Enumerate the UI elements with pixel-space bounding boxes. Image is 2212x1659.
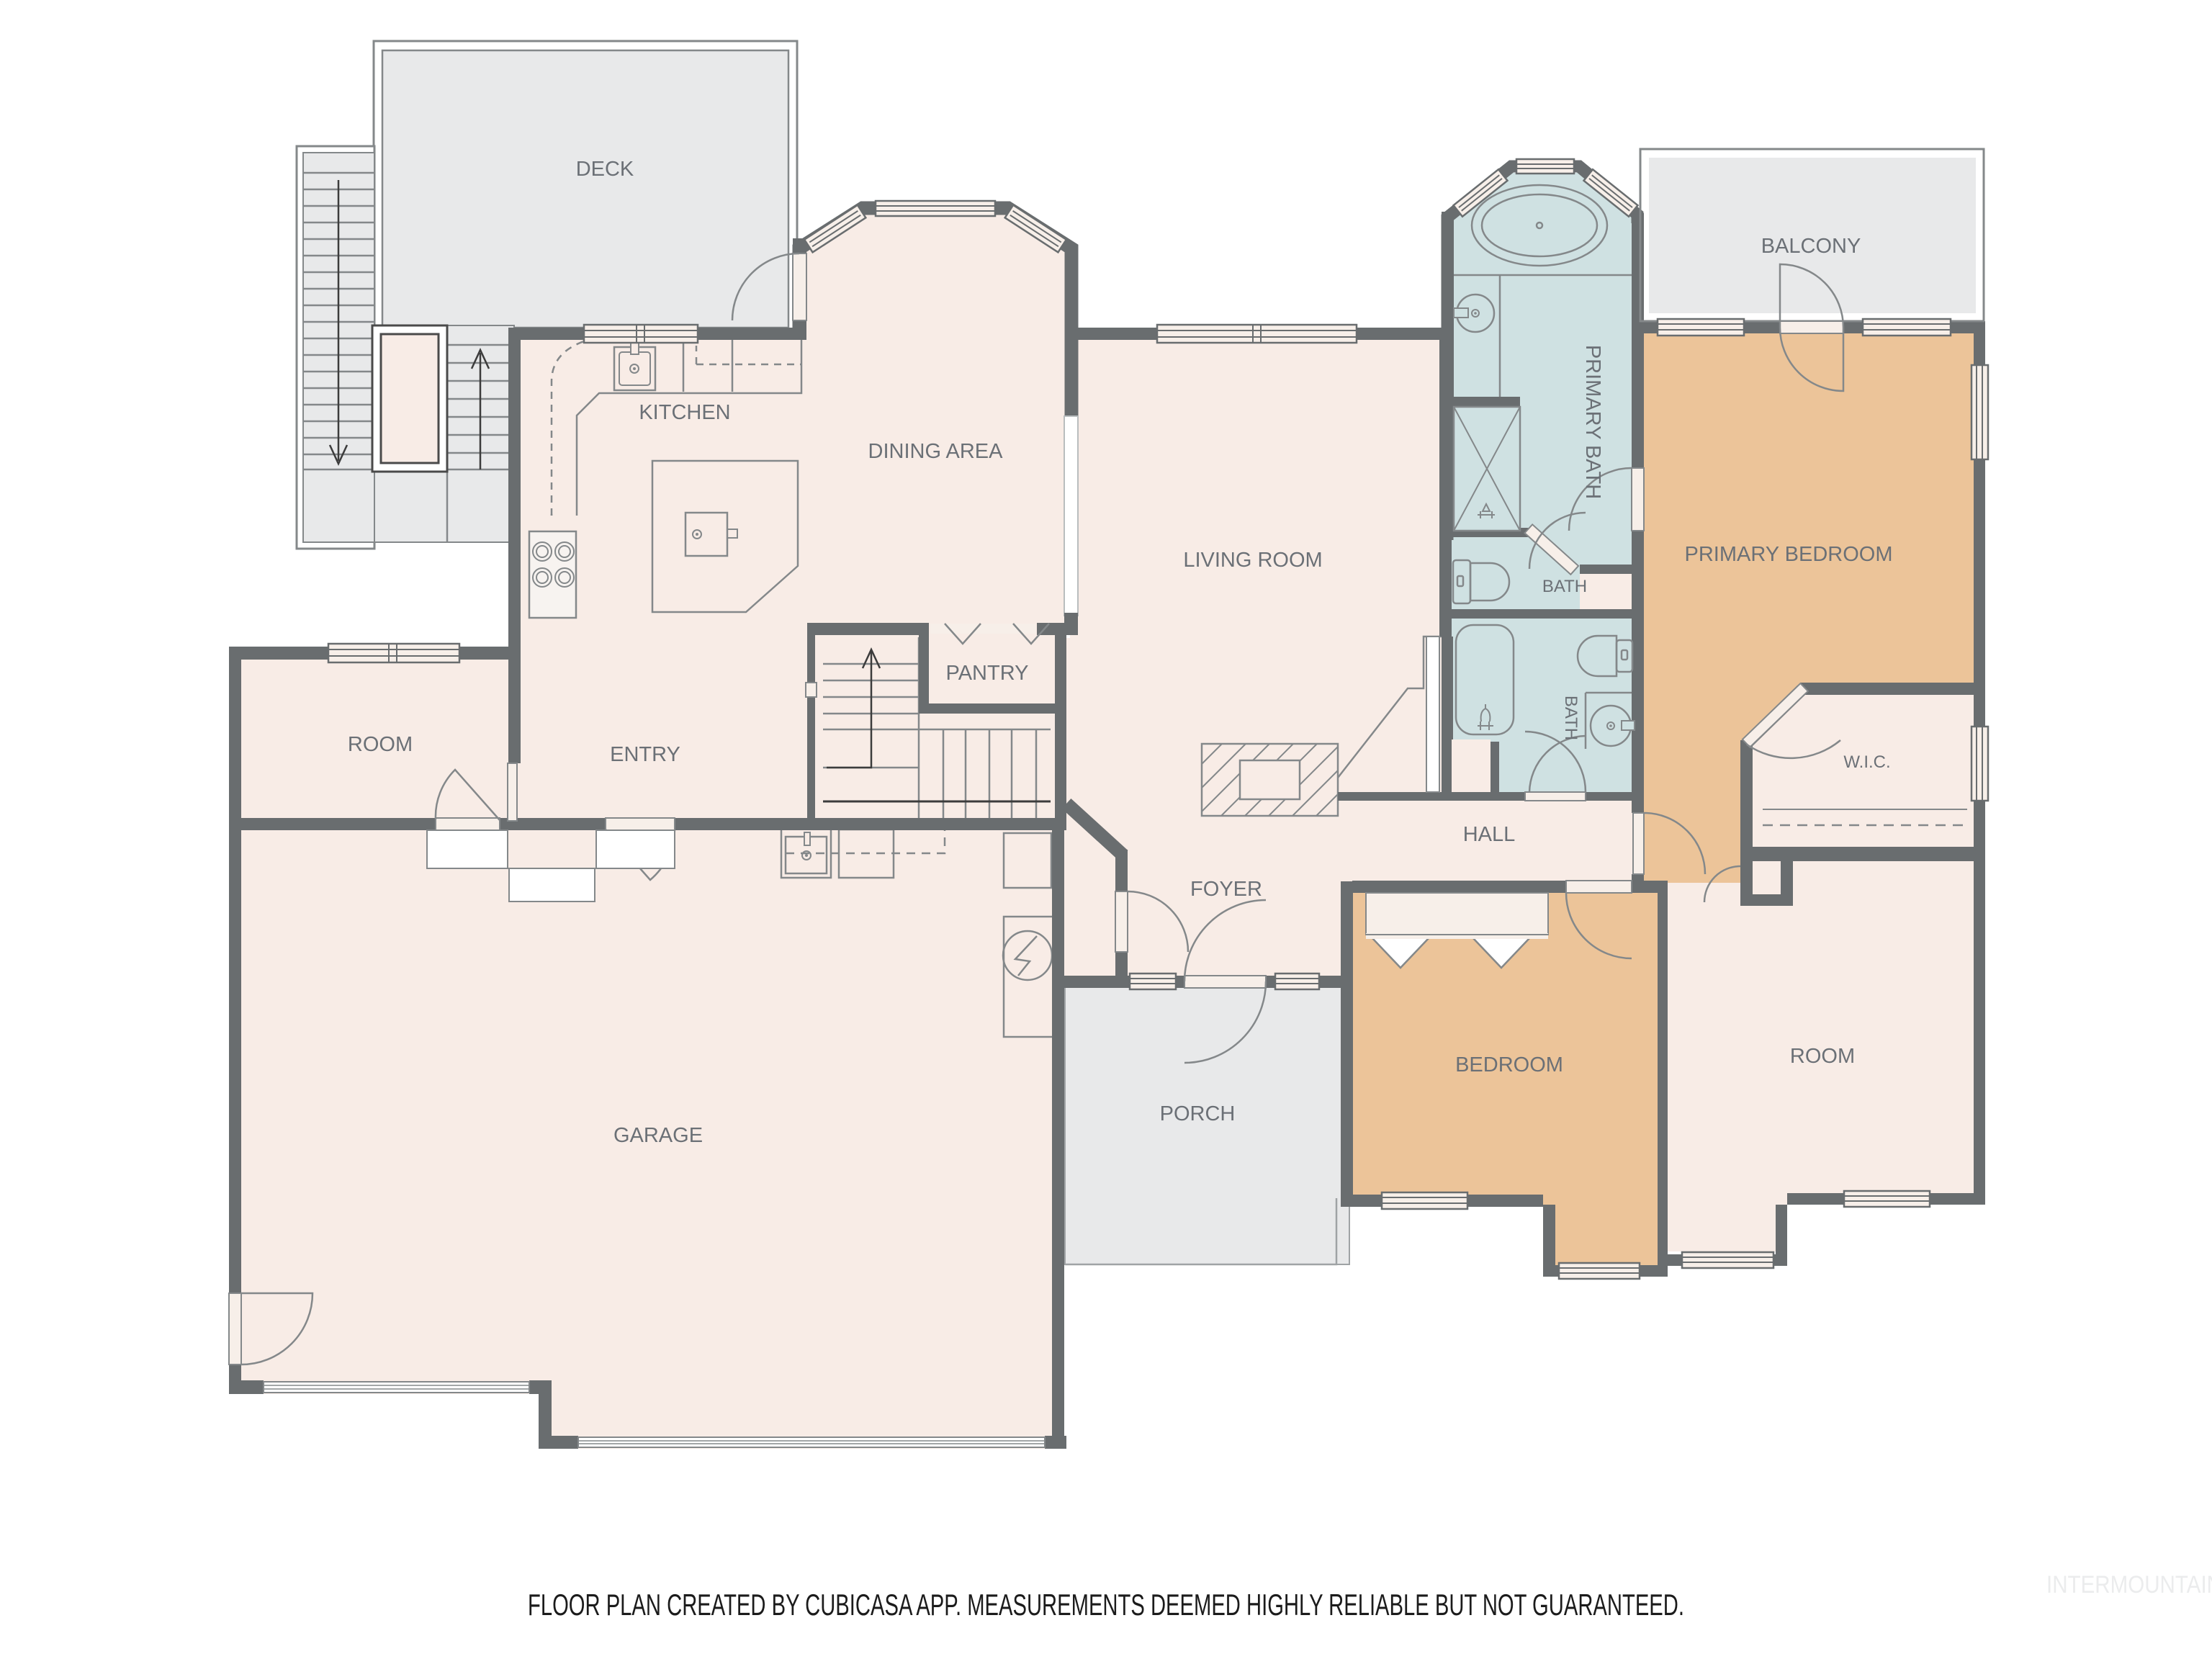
svg-text:DECK: DECK (576, 158, 634, 181)
svg-text:ROOM: ROOM (348, 733, 413, 756)
svg-text:BATH: BATH (1542, 577, 1587, 596)
svg-text:DINING AREA: DINING AREA (868, 440, 1004, 463)
svg-text:ENTRY: ENTRY (610, 743, 680, 766)
svg-text:PORCH: PORCH (1160, 1102, 1236, 1125)
svg-text:BALCONY: BALCONY (1761, 235, 1861, 258)
svg-text:FOYER: FOYER (1190, 878, 1262, 901)
svg-text:BATH: BATH (1561, 696, 1581, 740)
svg-text:W.I.C.: W.I.C. (1843, 752, 1890, 772)
svg-text:PANTRY: PANTRY (946, 662, 1029, 685)
svg-text:PRIMARY BEDROOM: PRIMARY BEDROOM (1685, 543, 1893, 566)
svg-text:KITCHEN: KITCHEN (639, 401, 730, 424)
svg-text:GARAGE: GARAGE (613, 1124, 703, 1147)
svg-text:HALL: HALL (1463, 823, 1516, 846)
svg-text:FLOOR PLAN CREATED BY CUBICASA: FLOOR PLAN CREATED BY CUBICASA APP. MEAS… (528, 1588, 1684, 1622)
svg-text:ROOM: ROOM (1790, 1045, 1855, 1068)
svg-text:PRIMARY BATH: PRIMARY BATH (1581, 345, 1604, 499)
svg-text:BEDROOM: BEDROOM (1455, 1053, 1563, 1076)
svg-text:LIVING ROOM: LIVING ROOM (1183, 549, 1322, 572)
svg-text:INTERMOUNTAIN: INTERMOUNTAIN (2046, 1571, 2212, 1599)
